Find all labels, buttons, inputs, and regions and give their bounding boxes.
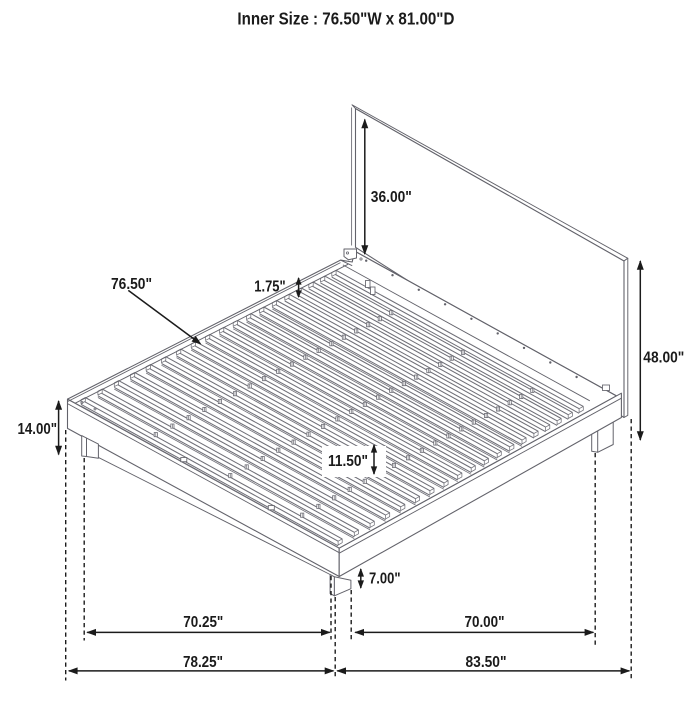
svg-text:48.00": 48.00" <box>643 350 684 367</box>
svg-text:70.25": 70.25" <box>183 614 223 631</box>
svg-text:36.00": 36.00" <box>371 189 412 206</box>
svg-text:1.75": 1.75" <box>254 279 285 296</box>
svg-text:83.50": 83.50" <box>466 654 507 671</box>
svg-text:14.00": 14.00" <box>18 421 58 438</box>
svg-text:70.00": 70.00" <box>465 614 505 631</box>
svg-text:76.50": 76.50" <box>111 276 152 293</box>
svg-text:Inner Size : 76.50"W x 81.00"D: Inner Size : 76.50"W x 81.00"D <box>237 8 454 28</box>
svg-text:11.50": 11.50" <box>328 453 368 470</box>
svg-text:7.00": 7.00" <box>369 570 401 587</box>
svg-text:78.25": 78.25" <box>183 654 223 671</box>
